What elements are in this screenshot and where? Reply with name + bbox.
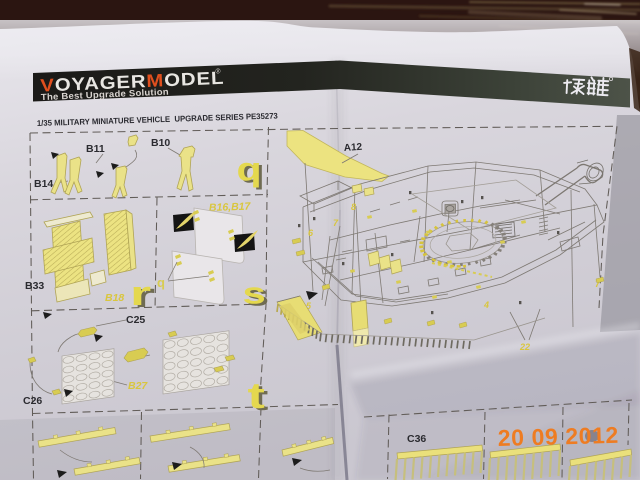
svg-text:8: 8 — [351, 202, 356, 212]
svg-text:s: s — [243, 276, 266, 311]
svg-text:B33: B33 — [25, 280, 44, 292]
svg-text:22: 22 — [519, 342, 530, 352]
svg-text:4: 4 — [483, 300, 489, 310]
svg-text:q: q — [237, 150, 262, 187]
svg-text:B11: B11 — [86, 143, 105, 155]
svg-text:20 09 2012: 20 09 2012 — [497, 422, 619, 451]
svg-text:C36: C36 — [407, 433, 426, 445]
svg-text:B14: B14 — [34, 178, 53, 190]
svg-text:q: q — [157, 275, 165, 290]
svg-text:B10: B10 — [151, 137, 170, 149]
svg-text:B27: B27 — [128, 380, 148, 392]
svg-text:r: r — [130, 274, 151, 312]
svg-text:C25: C25 — [126, 314, 145, 326]
svg-text:B18: B18 — [105, 292, 124, 304]
svg-text:t: t — [248, 375, 265, 416]
svg-text:A12: A12 — [343, 142, 363, 154]
svg-text:C26: C26 — [23, 395, 42, 407]
